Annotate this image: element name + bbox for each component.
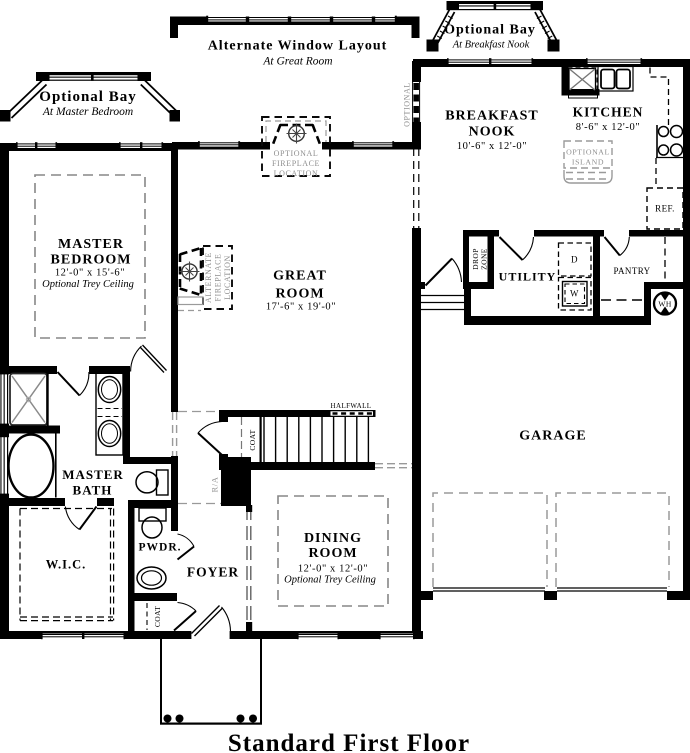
svg-text:17'-6" x 19'-0": 17'-6" x 19'-0" — [266, 302, 336, 313]
svg-text:KITCHEN: KITCHEN — [573, 105, 644, 120]
svg-text:PANTRY: PANTRY — [613, 266, 650, 276]
svg-text:At Great Room: At Great Room — [262, 56, 332, 68]
svg-text:ISLAND: ISLAND — [572, 158, 604, 167]
svg-text:HALFWALL: HALFWALL — [331, 402, 372, 410]
svg-text:DINING: DINING — [304, 531, 362, 546]
svg-text:Optional Bay: Optional Bay — [444, 23, 536, 38]
svg-text:Alternate Window Layout: Alternate Window Layout — [208, 39, 388, 54]
svg-text:MASTER: MASTER — [62, 467, 124, 482]
svg-text:NOOK: NOOK — [469, 125, 516, 140]
svg-text:FIREPLACE: FIREPLACE — [214, 253, 223, 301]
svg-text:D: D — [571, 255, 578, 265]
svg-text:ZONE: ZONE — [480, 248, 489, 270]
svg-text:Optional Trey Ceiling: Optional Trey Ceiling — [42, 279, 134, 290]
svg-text:8'-6" x 12'-0": 8'-6" x 12'-0" — [576, 122, 641, 133]
svg-text:UTILITY: UTILITY — [499, 270, 557, 284]
svg-text:WH: WH — [658, 300, 671, 309]
svg-text:REF.: REF. — [655, 204, 675, 214]
svg-text:COAT: COAT — [248, 429, 257, 450]
svg-text:At Breakfast Nook: At Breakfast Nook — [452, 40, 530, 51]
svg-text:ROOM: ROOM — [275, 287, 324, 302]
svg-text:R/A: R/A — [210, 476, 220, 492]
svg-text:W: W — [570, 289, 579, 299]
svg-text:12'-0" x 15'-6": 12'-0" x 15'-6" — [55, 268, 125, 279]
svg-text:LOCATION: LOCATION — [274, 169, 319, 178]
svg-text:Standard First Floor: Standard First Floor — [228, 730, 470, 753]
svg-text:Optional Trey Ceiling: Optional Trey Ceiling — [284, 575, 376, 586]
svg-text:OPTIONAL: OPTIONAL — [566, 148, 610, 157]
svg-text:OPTIONAL: OPTIONAL — [403, 82, 412, 127]
svg-text:BEDROOM: BEDROOM — [51, 253, 132, 268]
svg-text:W.I.C.: W.I.C. — [46, 558, 87, 572]
svg-text:ALTERNATE: ALTERNATE — [204, 252, 213, 303]
svg-text:COAT: COAT — [153, 606, 162, 627]
svg-text:12'-0" x 12'-0": 12'-0" x 12'-0" — [298, 564, 368, 575]
svg-text:MASTER: MASTER — [58, 237, 124, 252]
svg-text:BATH: BATH — [73, 483, 113, 498]
svg-text:BREAKFAST: BREAKFAST — [445, 109, 539, 124]
svg-text:ROOM: ROOM — [308, 546, 357, 561]
svg-text:OPTIONAL: OPTIONAL — [274, 149, 319, 158]
svg-text:LOCATION: LOCATION — [223, 255, 232, 300]
svg-text:GARAGE: GARAGE — [519, 429, 586, 444]
svg-text:FOYER: FOYER — [187, 565, 239, 580]
svg-text:FIREPLACE: FIREPLACE — [272, 159, 320, 168]
svg-text:GREAT: GREAT — [273, 269, 327, 284]
svg-text:PWDR.: PWDR. — [138, 542, 181, 554]
svg-text:At Master Bedroom: At Master Bedroom — [42, 106, 133, 118]
svg-text:Optional Bay: Optional Bay — [39, 89, 136, 105]
svg-text:10'-6" x 12'-0": 10'-6" x 12'-0" — [457, 141, 527, 152]
